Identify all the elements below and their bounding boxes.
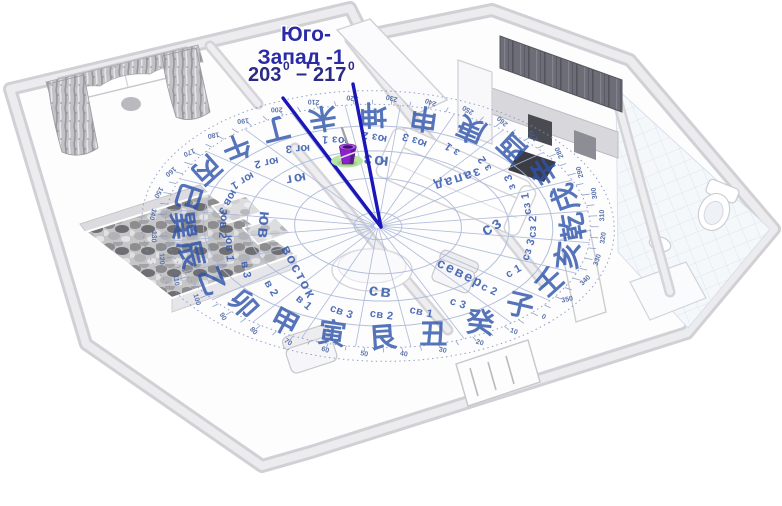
range-sep: – [296, 63, 307, 85]
annotation-title-line1: Юго- [281, 23, 331, 46]
degree-label: 130 [150, 231, 158, 243]
mountain-label: 乾 [555, 210, 592, 243]
range-to: 217 [313, 64, 346, 86]
degree-label: 110 [172, 274, 180, 286]
mountain-label: 亥 [550, 240, 586, 271]
mountain-label: 丑 [419, 317, 447, 350]
sector-label: сз 2 [527, 215, 540, 238]
degree-label: 40 [399, 350, 408, 358]
mountain-label: 寅 [316, 315, 348, 352]
range-sup: 0 [283, 59, 290, 73]
mountain-label: 未 [306, 100, 339, 137]
range-sup: 0 [348, 59, 355, 73]
degree-label: 190 [237, 116, 249, 124]
range-from: 203 [248, 64, 281, 86]
sector-label: юг 3 [285, 142, 310, 155]
scene: 0102030405060708090100110120130140150160… [0, 0, 782, 506]
mountain-label: 癸 [463, 305, 495, 341]
direction-label: юв [254, 210, 275, 241]
floorplan-compass-screenshot: 0102030405060708090100110120130140150160… [0, 0, 782, 506]
direction-label: св [368, 280, 394, 301]
degree-label: 310 [599, 209, 606, 221]
degree-label: 320 [599, 232, 607, 245]
mountain-label: 艮 [368, 320, 399, 355]
annotation-range: 203 0 – 217 0 [248, 59, 355, 86]
degree-label: 120 [158, 253, 165, 265]
sector-label: юв 2 [216, 211, 230, 239]
windowsill-plant-icon [121, 97, 141, 111]
mountain-label: 申 [408, 100, 440, 137]
mountain-label: 巽 [165, 209, 201, 241]
